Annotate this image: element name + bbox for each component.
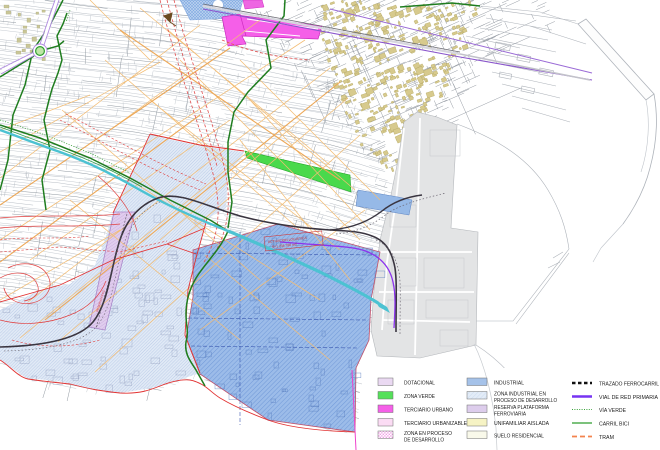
svg-text:INDUSTRIAL: INDUSTRIAL <box>494 381 525 387</box>
svg-text:FERROVIARIA: FERROVIARIA <box>494 411 526 417</box>
svg-text:TRAZADO FERROCARRIL: TRAZADO FERROCARRIL <box>599 382 660 388</box>
svg-text:UNIFAMILIAR AISLADA: UNIFAMILIAR AISLADA <box>494 421 549 427</box>
svg-text:VIAL DE RED PRIMARIA: VIAL DE RED PRIMARIA <box>599 395 658 401</box>
svg-text:SUELO RESIDENCIAL: SUELO RESIDENCIAL <box>494 434 545 440</box>
svg-text:ZONA EN PROCESO: ZONA EN PROCESO <box>404 431 452 437</box>
svg-text:RESERVA PLATAFORMA: RESERVA PLATAFORMA <box>494 405 549 411</box>
svg-text:TERCIARIO URBANIZABLE: TERCIARIO URBANIZABLE <box>404 421 467 427</box>
svg-text:DE DESARROLLO: DE DESARROLLO <box>404 437 444 443</box>
svg-text:VÍA VERDE: VÍA VERDE <box>599 407 626 414</box>
svg-text:ZONA VERDE: ZONA VERDE <box>404 394 435 400</box>
svg-text:DOTACIONAL: DOTACIONAL <box>404 381 436 387</box>
svg-text:CARRIL BICI: CARRIL BICI <box>599 422 629 428</box>
svg-text:ZONA INDUSTRIAL EN: ZONA INDUSTRIAL EN <box>494 391 546 397</box>
svg-text:PROCESO DE DESARROLLO: PROCESO DE DESARROLLO <box>494 398 557 404</box>
svg-text:TRAM: TRAM <box>599 435 614 441</box>
svg-text:TERCIARIO URBANO: TERCIARIO URBANO <box>404 408 453 414</box>
